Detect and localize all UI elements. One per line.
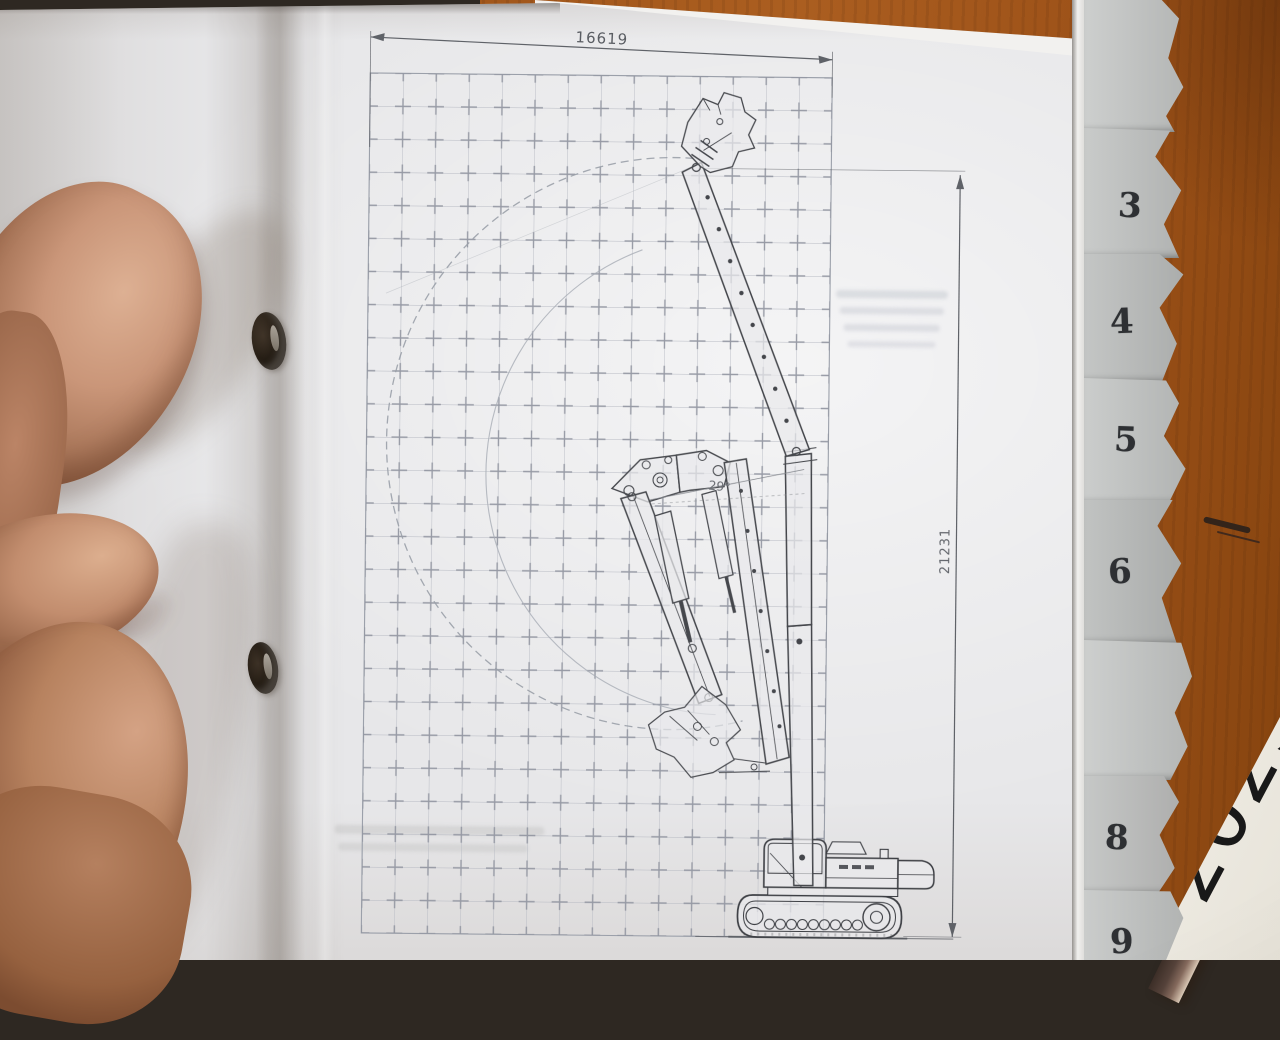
tab-number: 3: [1117, 185, 1143, 226]
index-tab: [1084, 776, 1192, 894]
page-top-edge-shadow: [0, 0, 560, 14]
tab-number: 9: [1109, 922, 1134, 963]
index-tab: [1084, 254, 1192, 382]
boom-angle-label: 29°: [708, 477, 732, 494]
tab-number: 5: [1113, 420, 1138, 461]
tab-number: 4: [1109, 302, 1134, 343]
working-range-drawing: 16619 21231 29°: [325, 12, 995, 959]
width-dimension-label: 16619: [575, 28, 629, 49]
excavator-body: [764, 839, 935, 897]
ring-highlight: [269, 325, 281, 352]
height-dimension-label: 21231: [938, 528, 953, 575]
ring-highlight: [262, 653, 274, 680]
binder-gutter-crease: [255, 0, 305, 960]
index-tab: [1084, 640, 1192, 780]
excavator-tracks: [737, 895, 901, 939]
index-tab: [1084, 0, 1192, 132]
grid-paper: [361, 73, 832, 938]
index-tab: [1084, 890, 1192, 960]
tab-number: 8: [1104, 818, 1129, 859]
page-curl-highlight: [316, 0, 334, 960]
index-tab: [1084, 500, 1192, 644]
index-tabs: 3 4 5 6 8 9: [1072, 0, 1194, 960]
tab-number: 6: [1107, 551, 1133, 592]
index-tab: [1084, 378, 1192, 504]
